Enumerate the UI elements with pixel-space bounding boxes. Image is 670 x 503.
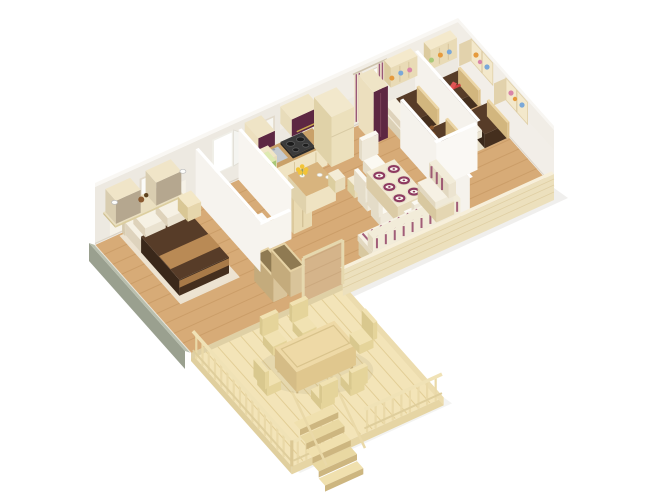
flower bbox=[298, 170, 303, 175]
plate-center bbox=[388, 186, 391, 188]
plate-center bbox=[398, 197, 401, 199]
dining-chair-back-side bbox=[359, 138, 362, 161]
stove-burner bbox=[293, 148, 299, 152]
kids-a-bed-footboard-0-front bbox=[437, 108, 439, 125]
toy bbox=[473, 52, 478, 57]
toy bbox=[429, 58, 434, 63]
toy bbox=[438, 53, 443, 58]
outdoor-chair-back-side bbox=[319, 383, 322, 403]
flower bbox=[300, 164, 305, 169]
toy bbox=[478, 60, 482, 64]
toy bbox=[447, 50, 452, 55]
plate-center bbox=[378, 175, 381, 177]
decor-clock bbox=[138, 196, 144, 202]
stove-burner bbox=[303, 143, 309, 147]
fridge-column-front bbox=[332, 107, 355, 167]
decor-figurine bbox=[144, 193, 148, 197]
outdoor-chair-back-side bbox=[289, 303, 292, 323]
flower bbox=[303, 170, 308, 175]
wall-lamp bbox=[112, 200, 118, 204]
teddy-bear-head bbox=[430, 125, 434, 129]
outdoor-chair-back-front bbox=[373, 321, 377, 340]
floorplan-stage bbox=[0, 0, 670, 503]
plate-center bbox=[403, 179, 406, 181]
toy bbox=[389, 76, 394, 81]
toy bbox=[398, 71, 403, 76]
floorplan-render bbox=[0, 0, 670, 503]
plate-center bbox=[393, 168, 396, 170]
wall-lamp bbox=[180, 169, 186, 173]
plate-center bbox=[413, 191, 416, 193]
toy bbox=[519, 102, 524, 107]
outdoor-chair-back-side bbox=[349, 370, 352, 390]
toy bbox=[484, 64, 489, 69]
outdoor-chair-back-front bbox=[265, 371, 269, 390]
cup bbox=[317, 173, 322, 176]
faucet bbox=[272, 148, 275, 150]
stove-burner bbox=[287, 141, 295, 146]
toy bbox=[407, 68, 412, 73]
kids-b-bed-footboard-1-front bbox=[507, 122, 509, 139]
toy bbox=[508, 90, 513, 95]
kids-b-bed-footboard-0-front bbox=[478, 89, 480, 106]
outdoor-chair-back-side bbox=[260, 316, 263, 336]
toy bbox=[513, 97, 517, 101]
stove-burner bbox=[296, 137, 304, 142]
